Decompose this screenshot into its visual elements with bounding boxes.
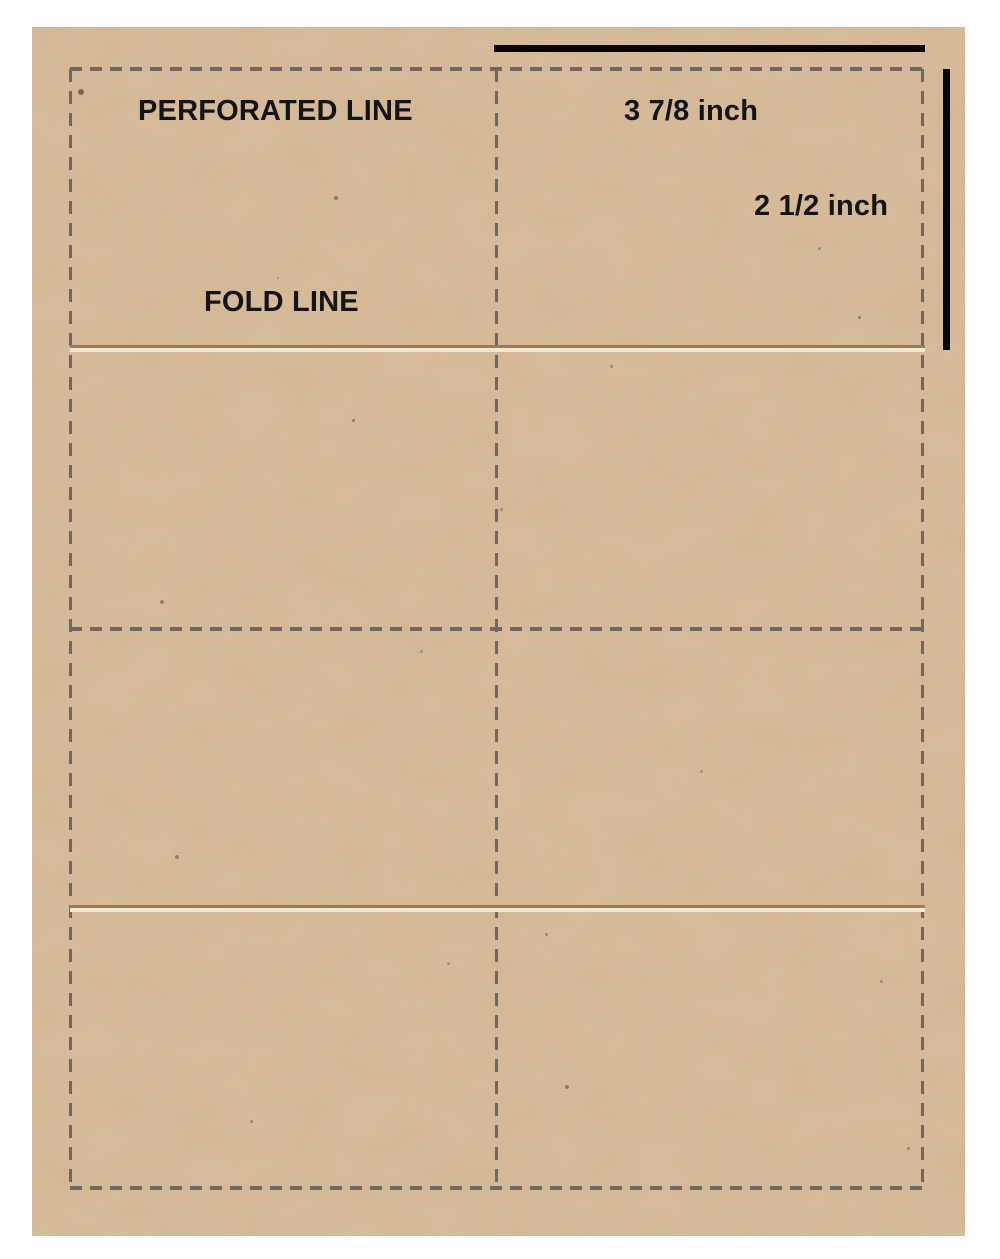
fold-line-lower — [70, 905, 925, 912]
fold-line-upper — [70, 345, 925, 352]
paper-speck — [880, 980, 883, 983]
perforated-line-horizontal-top — [70, 67, 925, 71]
paper-speck — [250, 1120, 253, 1123]
cell-width-measure-bar — [494, 45, 925, 52]
perforated-line-label: PERFORATED LINE — [138, 95, 413, 127]
paper-speck — [78, 89, 84, 95]
paper-speck — [160, 600, 164, 604]
paper-speck — [818, 247, 821, 250]
perforated-line-horizontal-bottom — [70, 1186, 925, 1190]
paper-speck — [858, 316, 861, 319]
paper-speck — [545, 933, 548, 936]
paper-speck — [277, 277, 279, 279]
paper-speck — [610, 365, 613, 368]
paper-speck — [907, 1147, 910, 1150]
cell-width-label: 3 7/8 inch — [624, 95, 758, 127]
paper-speck — [700, 770, 703, 773]
cell-height-label: 2 1/2 inch — [754, 190, 888, 222]
cell-height-measure-bar — [943, 69, 950, 350]
kraft-paper-sheet: PERFORATED LINE 3 7/8 inch 2 1/2 inch FO… — [32, 27, 965, 1236]
paper-speck — [420, 650, 423, 653]
fold-crease-highlight — [70, 908, 925, 912]
paper-speck — [352, 419, 355, 422]
paper-speck — [565, 1085, 569, 1089]
paper-speck — [447, 962, 450, 965]
paper-speck — [175, 855, 179, 859]
fold-line-label: FOLD LINE — [204, 286, 359, 318]
fold-crease-highlight — [70, 348, 925, 352]
perforated-line-horizontal-middle — [70, 627, 925, 631]
page: { "canvas": { "background": "#ffffff" },… — [0, 0, 1000, 1259]
paper-speck — [500, 508, 503, 511]
paper-speck — [334, 196, 338, 200]
